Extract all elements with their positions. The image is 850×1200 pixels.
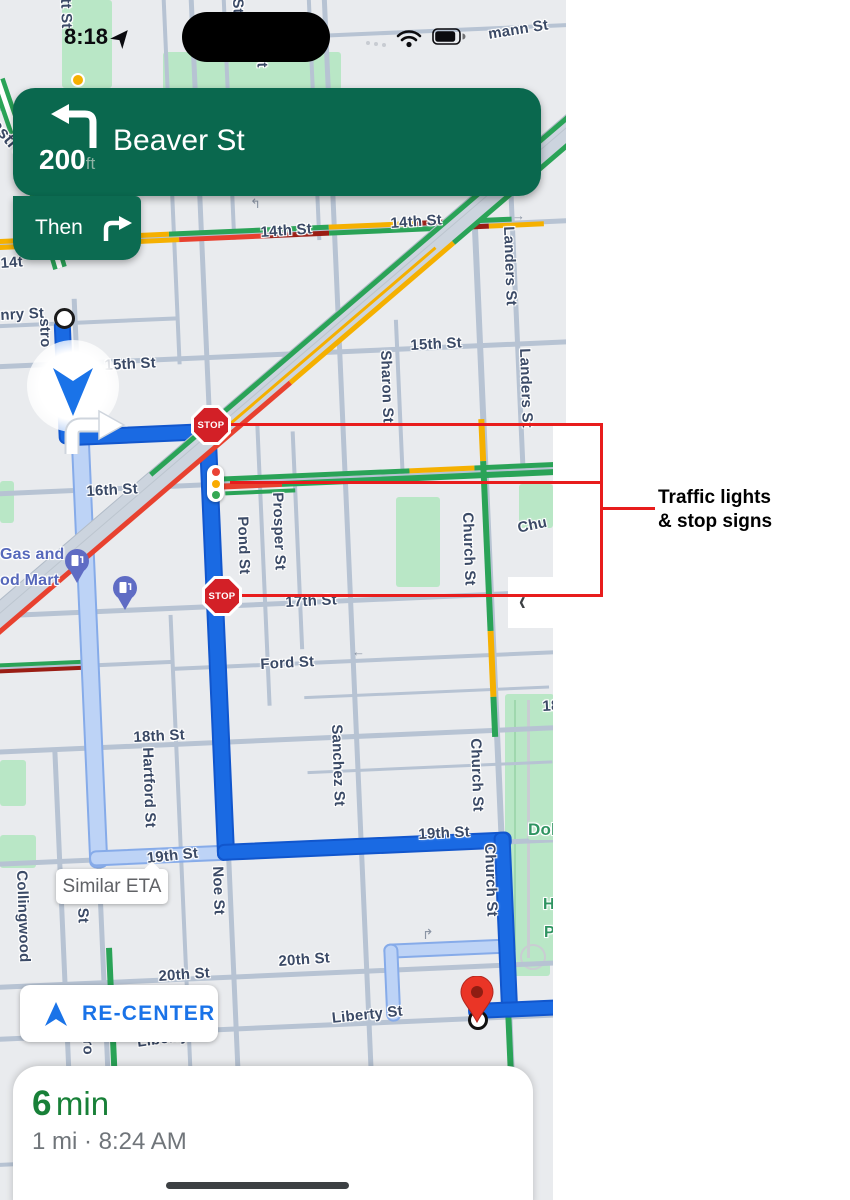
annotation-line-connector [600, 507, 655, 510]
road [304, 685, 549, 699]
screenshot-root: { "status_bar": { "time": "8:18" }, "nav… [0, 0, 850, 1200]
eta-unit: min [56, 1085, 109, 1122]
recenter-button[interactable]: RE-CENTER [20, 985, 218, 1042]
battery-icon [432, 28, 466, 45]
street-label: Dol [528, 820, 556, 840]
street-label: Pond St [234, 516, 253, 575]
street-label: Prosper St [269, 492, 289, 570]
phone-screenshot: tt StStStmann Stastro S14th St14th St14t… [0, 0, 566, 1200]
home-indicator[interactable] [166, 1182, 349, 1189]
street-label: ↰ [250, 196, 261, 212]
annotation-text: Traffic lights & stop signs [658, 486, 772, 534]
annotation-line-middle [230, 481, 603, 484]
street-label: Hartford St [139, 747, 159, 828]
maneuver-street: Beaver St [113, 124, 245, 158]
annotation-line-bottom [242, 594, 603, 597]
gas-station-pin-icon[interactable] [63, 548, 91, 584]
recenter-label: RE-CENTER [82, 1002, 215, 1026]
similar-eta-pill[interactable]: Similar ETA [56, 869, 168, 904]
street-label: Ford St [260, 653, 315, 673]
street-label: Gas and [0, 546, 65, 564]
path-dot [374, 42, 378, 46]
side-panel-collapse[interactable]: ‹ [508, 577, 553, 628]
path-dot [382, 43, 386, 47]
annotation-line-vertical [600, 423, 603, 597]
street-label: Noe St [209, 866, 228, 915]
dynamic-island [182, 12, 330, 62]
traffic-light-icon [207, 465, 224, 502]
right-turn-arrow-icon [99, 214, 133, 242]
street-label: od Mart [0, 572, 59, 590]
street-label: Church St [481, 843, 501, 917]
route-turn-arrow [58, 402, 142, 454]
street-label: 15th St [410, 334, 462, 354]
street-label: 20th St [278, 949, 330, 970]
maneuver-distance-unit: ft [86, 154, 95, 173]
eta-value: 6 [32, 1084, 51, 1123]
street-label: → [512, 208, 525, 223]
street-label: 16th St [86, 480, 138, 500]
destination-pin-icon[interactable] [459, 976, 495, 1024]
street-label: ← [352, 644, 365, 659]
map-edge-mask [553, 425, 566, 1200]
route-summary-sheet[interactable]: 6 min 1 mi · 8:24 AM [13, 1066, 533, 1200]
street-label: Sanchez St [328, 724, 348, 807]
street-label: Landers St [516, 348, 536, 428]
annotation-line-top [231, 423, 603, 426]
street-label: ↱ [422, 926, 434, 943]
gas-station-pin-icon[interactable] [111, 575, 139, 611]
street-label: Sharon St [377, 350, 397, 423]
navigation-banner[interactable]: 200ft Beaver St [13, 88, 541, 196]
left-turn-arrow-icon [49, 100, 101, 150]
status-time: 8:18 [64, 24, 108, 50]
recenter-arrow-icon [44, 1001, 68, 1027]
similar-eta-label: Similar ETA [63, 876, 162, 898]
street-label: 14th St [260, 220, 312, 241]
street-label: 18th St [133, 726, 185, 746]
street-label: stro [36, 318, 54, 348]
then-maneuver-chip[interactable]: Then [13, 196, 141, 260]
route-start-dot [54, 308, 75, 329]
street-label: Landers St [500, 226, 520, 306]
stop-sign-icon: STOP [202, 576, 242, 616]
then-label: Then [35, 216, 83, 240]
route-details: 1 mi · 8:24 AM [32, 1128, 187, 1156]
street-label: Church St [467, 738, 487, 812]
street-label: Collingwood [13, 870, 33, 963]
stop-sign-icon: STOP [191, 405, 231, 445]
alternate-route-segment [383, 938, 514, 959]
street-label: 19th St [418, 823, 470, 843]
street-label: Church St [459, 512, 479, 586]
maneuver-distance: 200 [39, 144, 86, 175]
chevron-left-icon: ‹ [519, 586, 526, 618]
road [291, 431, 305, 649]
wifi-icon [396, 29, 422, 48]
street-label: 20th St [158, 964, 210, 985]
path-dot [366, 41, 370, 45]
road [173, 646, 566, 670]
street-label: 14th St [390, 211, 442, 232]
